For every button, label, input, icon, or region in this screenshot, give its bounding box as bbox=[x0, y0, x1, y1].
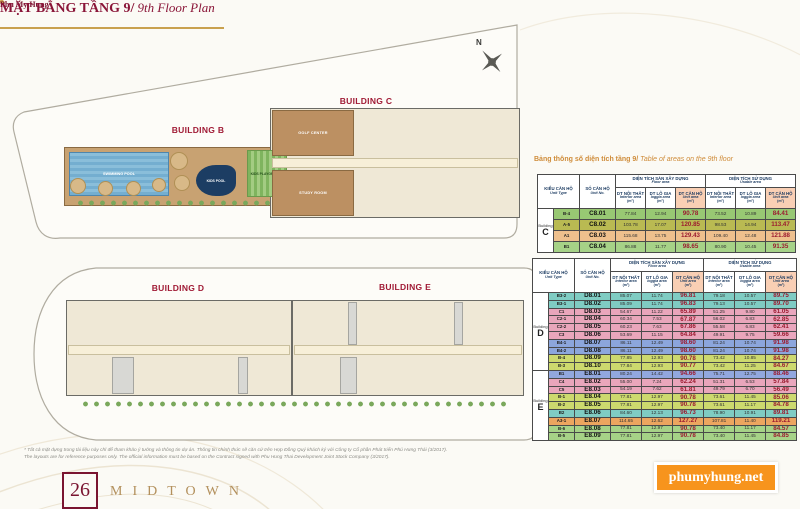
cell-unit-type: B4-1 bbox=[549, 339, 575, 347]
cell-floor-value: 11.77 bbox=[646, 242, 676, 253]
cell-floor-value: 12.97 bbox=[642, 425, 673, 433]
page-title-vi: MẶT BẰNG TẦNG 9/ bbox=[0, 1, 134, 16]
cell-floor-unit-area: 120.85 bbox=[676, 220, 706, 231]
cell-unit-no: D8.03 bbox=[575, 308, 611, 316]
cell-floor-value: 12.13 bbox=[642, 409, 673, 417]
cell-floor-value: 13.75 bbox=[646, 231, 676, 242]
building-c-corridor bbox=[272, 158, 518, 168]
building-e-core bbox=[348, 302, 357, 345]
cell-unit-no: D8.05 bbox=[575, 324, 611, 332]
cell-usable-value: 107.81 bbox=[704, 417, 735, 425]
table-row-C8.04: B1C8.0486.8811.7798.6580.9010.4591.35 bbox=[538, 242, 796, 253]
cell-usable-value: 14.94 bbox=[736, 220, 766, 231]
cell-usable-unit-area: 89.70 bbox=[766, 300, 797, 308]
header-usable-area: DIỆN TÍCH SỬ DỤNGUsable area bbox=[704, 259, 797, 272]
cell-unit-type: B1 bbox=[554, 242, 580, 253]
cell-usable-unit-area: 62.41 bbox=[766, 324, 797, 332]
building-e-title: BUILDING E bbox=[357, 282, 453, 292]
cell-floor-value: 60.23 bbox=[611, 324, 642, 332]
cell-usable-value: 75.71 bbox=[704, 370, 735, 378]
building-e-corridor bbox=[294, 345, 522, 355]
cell-unit-type: C2-1 bbox=[549, 316, 575, 324]
cell-floor-value: 77.84 bbox=[611, 363, 642, 371]
cell-usable-value: 51.25 bbox=[704, 308, 735, 316]
building-e-core bbox=[340, 357, 357, 394]
cell-usable-unit-area: 113.47 bbox=[766, 220, 796, 231]
cell-unit-type: B3-2 bbox=[549, 293, 575, 301]
cell-usable-unit-area: 56.49 bbox=[766, 386, 797, 394]
building-d-corridor bbox=[68, 345, 290, 355]
cell-unit-no: D8.02 bbox=[575, 300, 611, 308]
cell-unit-no: D8.04 bbox=[575, 316, 611, 324]
cell-floor-unit-area: 90.78 bbox=[673, 355, 704, 363]
cell-floor-value: 7.63 bbox=[642, 324, 673, 332]
disclaimer-en: The layouts are for reference purposes o… bbox=[24, 454, 744, 461]
cell-unit-no: E8.08 bbox=[575, 425, 611, 433]
cell-usable-unit-area: 91.35 bbox=[766, 242, 796, 253]
cell-floor-value: 77.81 bbox=[611, 425, 642, 433]
cell-usable-unit-area: 84.67 bbox=[766, 363, 797, 371]
page-title-en: 9th Floor Plan bbox=[137, 0, 214, 15]
cell-usable-unit-area: 89.81 bbox=[766, 409, 797, 417]
tree-icon bbox=[152, 178, 166, 192]
table-row-E8.04: B-1E8.0477.8112.9790.7873.6111.4585.06 bbox=[533, 394, 797, 402]
table-row-E8.07: A3-1E8.07114.6512.62127.27107.8111.40119… bbox=[533, 417, 797, 425]
cell-floor-unit-area: 90.77 bbox=[673, 363, 704, 371]
cell-usable-value: 11.45 bbox=[735, 433, 766, 441]
cell-floor-value: 7.62 bbox=[642, 386, 673, 394]
cell-floor-value: 12.62 bbox=[642, 417, 673, 425]
cell-unit-type: B2 bbox=[549, 409, 575, 417]
header-floor-area: DIỆN TÍCH SÀN XÂY DỰNGFloor area bbox=[611, 259, 704, 272]
cell-floor-unit-area: 62.24 bbox=[673, 378, 704, 386]
cell-unit-no: E8.06 bbox=[575, 409, 611, 417]
cell-usable-value: 79.13 bbox=[704, 300, 735, 308]
cell-usable-value: 81.24 bbox=[704, 339, 735, 347]
table-row-E8.02: C4E8.0255.007.2462.2451.316.5357.84 bbox=[533, 378, 797, 386]
cell-usable-unit-area: 91.98 bbox=[766, 347, 797, 355]
cell-usable-value: 6.53 bbox=[735, 378, 766, 386]
cell-floor-unit-area: 90.78 bbox=[673, 433, 704, 441]
cell-floor-unit-area: 90.78 bbox=[673, 402, 704, 410]
title-underline bbox=[0, 27, 224, 29]
cell-usable-unit-area: 84.41 bbox=[766, 209, 796, 220]
cell-floor-unit-area: 90.78 bbox=[676, 209, 706, 220]
cell-usable-unit-area: 121.88 bbox=[766, 231, 796, 242]
building-d-core bbox=[112, 357, 134, 394]
area-table-buildings-d-e: KIỂU CĂN HỘUnit Type SỐ CĂN HỘUnit No. D… bbox=[532, 258, 796, 441]
cell-unit-no: D8.06 bbox=[575, 331, 611, 339]
cell-floor-unit-area: 98.65 bbox=[676, 242, 706, 253]
cell-floor-value: 114.65 bbox=[611, 417, 642, 425]
cell-floor-value: 85.07 bbox=[611, 293, 642, 301]
cell-usable-value: 49.91 bbox=[704, 331, 735, 339]
cell-usable-value: 10.57 bbox=[735, 293, 766, 301]
cell-unit-no: D8.08 bbox=[575, 347, 611, 355]
page-number: 26 bbox=[62, 472, 98, 509]
page-title: MẶT BẰNG TẦNG 9/9th Floor Plan bbox=[0, 0, 215, 17]
cell-usable-value: 78.90 bbox=[704, 409, 735, 417]
cell-usable-value: 73.52 bbox=[706, 209, 736, 220]
cell-unit-no: C8.01 bbox=[580, 209, 616, 220]
cell-floor-value: 77.85 bbox=[611, 355, 642, 363]
cell-floor-value: 12.93 bbox=[642, 363, 673, 371]
table-row-E8.06: B2E8.0684.6012.1396.7378.9010.9189.81 bbox=[533, 409, 797, 417]
common-area-study-room: STUDY ROOM bbox=[272, 170, 354, 216]
cell-floor-value: 55.00 bbox=[611, 378, 642, 386]
golf-center-label: GOLF CENTER bbox=[298, 131, 327, 135]
study-room-label: STUDY ROOM bbox=[299, 191, 327, 195]
cell-usable-value: 12.48 bbox=[736, 231, 766, 242]
cell-floor-value: 7.24 bbox=[642, 378, 673, 386]
cell-floor-unit-area: 96.81 bbox=[673, 293, 704, 301]
cell-floor-unit-area: 96.73 bbox=[673, 409, 704, 417]
tree-icon bbox=[98, 181, 113, 196]
header-loggia: DT LÔ GIAloggia area(m²) bbox=[735, 272, 766, 293]
cell-floor-unit-area: 90.78 bbox=[673, 425, 704, 433]
cell-unit-type: C2-2 bbox=[549, 324, 575, 332]
cell-usable-value: 6.70 bbox=[735, 386, 766, 394]
cell-usable-value: 11.45 bbox=[735, 394, 766, 402]
cell-floor-unit-area: 94.66 bbox=[673, 370, 704, 378]
table-row-D8.05: C2-2D8.0560.237.6367.8655.586.8362.41 bbox=[533, 324, 797, 332]
cell-floor-unit-area: 67.87 bbox=[673, 316, 704, 324]
cell-floor-value: 12.93 bbox=[642, 355, 673, 363]
cell-floor-value: 54.19 bbox=[611, 386, 642, 394]
cell-usable-value: 109.40 bbox=[706, 231, 736, 242]
cell-floor-value: 86.88 bbox=[616, 242, 646, 253]
cell-floor-value: 115.68 bbox=[616, 231, 646, 242]
cell-unit-no: D8.01 bbox=[575, 293, 611, 301]
cell-floor-unit-area: 98.60 bbox=[673, 347, 704, 355]
table-row-D8.08: B4-2D8.0886.1112.4998.6081.2410.7491.98 bbox=[533, 347, 797, 355]
header-interior: DT NỘI THẤTInterior area(m²) bbox=[706, 188, 736, 209]
cell-usable-value: 10.74 bbox=[735, 339, 766, 347]
table-row-E8.03: C5E8.0354.197.6261.8149.796.7056.49 bbox=[533, 386, 797, 394]
cell-unit-type: B-3 bbox=[549, 363, 575, 371]
cell-usable-unit-area: 57.84 bbox=[766, 378, 797, 386]
cell-floor-value: 54.67 bbox=[611, 308, 642, 316]
cell-usable-value: 73.40 bbox=[704, 433, 735, 441]
disclaimer-notes: * Tất cả mặt dựng trong tài liệu này chỉ… bbox=[24, 447, 744, 462]
cell-usable-value: 11.17 bbox=[735, 425, 766, 433]
table-row-C8.01: BuildingCB-4C8.0177.8412.9490.7873.5210.… bbox=[538, 209, 796, 220]
cell-floor-unit-area: 61.81 bbox=[673, 386, 704, 394]
header-unit-area: DT CĂN HỘUnit area(m²) bbox=[766, 188, 796, 209]
cell-unit-no: E8.02 bbox=[575, 378, 611, 386]
cell-usable-value: 11.40 bbox=[735, 417, 766, 425]
cell-usable-value: 80.90 bbox=[706, 242, 736, 253]
header-unit-area: DT CĂN HỘUnit area(m²) bbox=[676, 188, 706, 209]
cell-usable-value: 73.42 bbox=[704, 363, 735, 371]
table-row-D8.01: BuildingDB3-2D8.0185.0711.7496.8179.1810… bbox=[533, 293, 797, 301]
cell-usable-unit-area: 119.21 bbox=[766, 417, 797, 425]
cell-floor-value: 12.97 bbox=[642, 394, 673, 402]
tables-heading: Bảng thông số diện tích tầng 9/ Table of… bbox=[534, 156, 798, 163]
table-row-E8.01: BuildingEB1E8.0180.2414.4294.6675.7112.7… bbox=[533, 370, 797, 378]
cell-usable-value: 11.17 bbox=[735, 402, 766, 410]
cell-floor-value: 84.60 bbox=[611, 409, 642, 417]
cell-floor-unit-area: 96.83 bbox=[673, 300, 704, 308]
header-unit-type: KIỂU CĂN HỘUnit Type bbox=[538, 175, 580, 209]
header-loggia: DT LÔ GIAloggia area(m²) bbox=[646, 188, 676, 209]
cell-unit-type: A1 bbox=[554, 231, 580, 242]
cell-usable-value: 55.58 bbox=[704, 324, 735, 332]
cell-usable-value: 6.83 bbox=[735, 316, 766, 324]
cell-unit-type: A3-1 bbox=[549, 417, 575, 425]
cell-floor-unit-area: 127.27 bbox=[673, 417, 704, 425]
cell-usable-value: 10.57 bbox=[735, 300, 766, 308]
cell-unit-type: B-4 bbox=[549, 355, 575, 363]
building-cell-D: BuildingD bbox=[533, 293, 549, 371]
table-row-D8.03: C1D8.0354.6711.2265.8951.259.8061.05 bbox=[533, 308, 797, 316]
cell-unit-type: B-4 bbox=[554, 209, 580, 220]
building-d-title: BUILDING D bbox=[130, 283, 226, 293]
cell-usable-unit-area: 91.98 bbox=[766, 339, 797, 347]
cell-unit-type: C4 bbox=[549, 378, 575, 386]
header-usable-area: DIỆN TÍCH SỬ DỤNGUsable area bbox=[706, 175, 796, 188]
cell-floor-value: 11.74 bbox=[642, 300, 673, 308]
cell-usable-unit-area: 84.85 bbox=[766, 433, 797, 441]
phumyhung-link-label: phumyhung.net bbox=[669, 470, 764, 486]
cell-usable-unit-area: 84.78 bbox=[766, 402, 797, 410]
header-unit-no: SỐ CĂN HỘUnit No. bbox=[580, 175, 616, 209]
cell-floor-value: 60.34 bbox=[611, 316, 642, 324]
cell-unit-type: B-6 bbox=[549, 425, 575, 433]
tree-icon bbox=[174, 175, 190, 191]
header-loggia: DT LÔ GIAloggia area(m²) bbox=[642, 272, 673, 293]
phumyhung-link[interactable]: phumyhung.net bbox=[654, 462, 778, 493]
cell-floor-value: 12.97 bbox=[642, 402, 673, 410]
hedge-strip bbox=[75, 199, 287, 208]
cell-floor-value: 11.22 bbox=[642, 308, 673, 316]
header-interior: DT NỘI THẤTInterior area(m²) bbox=[704, 272, 735, 293]
cell-unit-type: B-5 bbox=[549, 433, 575, 441]
cell-floor-value: 77.81 bbox=[611, 394, 642, 402]
cell-floor-value: 14.42 bbox=[642, 370, 673, 378]
cell-floor-unit-area: 98.60 bbox=[673, 339, 704, 347]
cell-unit-no: E8.03 bbox=[575, 386, 611, 394]
cell-usable-value: 10.74 bbox=[735, 347, 766, 355]
brochure-page: Phu My Hung MẶT BẰNG TẦNG 9/9th Floor Pl… bbox=[0, 0, 800, 509]
cell-floor-value: 11.74 bbox=[642, 293, 673, 301]
building-b-title: BUILDING B bbox=[150, 125, 246, 135]
cell-unit-no: C8.03 bbox=[580, 231, 616, 242]
cell-floor-unit-area: 90.78 bbox=[673, 394, 704, 402]
cell-floor-value: 85.09 bbox=[611, 300, 642, 308]
cell-floor-unit-area: 67.86 bbox=[673, 324, 704, 332]
compass-n-label: N bbox=[476, 38, 482, 47]
cell-usable-value: 12.75 bbox=[735, 370, 766, 378]
cell-floor-value: 17.07 bbox=[646, 220, 676, 231]
cell-floor-value: 86.11 bbox=[611, 347, 642, 355]
cell-usable-value: 10.89 bbox=[736, 209, 766, 220]
header-unit-no: SỐ CĂN HỘUnit No. bbox=[575, 259, 611, 293]
hedge-strip bbox=[80, 400, 510, 409]
kids-pool-label: KIDS POOL bbox=[207, 179, 226, 183]
cell-usable-value: 51.31 bbox=[704, 378, 735, 386]
cell-unit-type: B3-1 bbox=[549, 300, 575, 308]
cell-unit-type: C3 bbox=[549, 331, 575, 339]
tables-heading-vi: Bảng thông số diện tích tầng 9/ bbox=[534, 156, 638, 163]
building-c-title: BUILDING C bbox=[318, 96, 414, 106]
disclaimer-vi: * Tất cả mặt dựng trong tài liệu này chỉ… bbox=[24, 447, 744, 454]
cell-floor-value: 12.49 bbox=[642, 339, 673, 347]
tree-icon bbox=[126, 181, 141, 196]
cell-unit-type: B-2 bbox=[549, 402, 575, 410]
cell-floor-value: 12.94 bbox=[646, 209, 676, 220]
kids-pool: KIDS POOL bbox=[196, 165, 236, 196]
cell-unit-type: B1 bbox=[549, 370, 575, 378]
cell-usable-value: 6.83 bbox=[735, 324, 766, 332]
swimming-pool-label: SWIMMING POOL bbox=[103, 172, 135, 176]
cell-usable-value: 56.02 bbox=[704, 316, 735, 324]
tree-icon bbox=[170, 152, 188, 170]
cell-unit-no: D8.09 bbox=[575, 355, 611, 363]
cell-usable-value: 10.45 bbox=[736, 242, 766, 253]
cell-usable-value: 10.91 bbox=[735, 409, 766, 417]
cell-usable-value: 9.80 bbox=[735, 308, 766, 316]
cell-unit-no: E8.04 bbox=[575, 394, 611, 402]
table-row-D8.10: B-3D8.1077.8412.9390.7773.4211.2584.67 bbox=[533, 363, 797, 371]
cell-floor-value: 7.53 bbox=[642, 316, 673, 324]
cell-unit-no: E8.07 bbox=[575, 417, 611, 425]
cell-unit-no: E8.05 bbox=[575, 402, 611, 410]
header-interior: DT NỘI THẤTInterior area(m²) bbox=[616, 188, 646, 209]
cell-unit-no: D8.10 bbox=[575, 363, 611, 371]
cell-floor-value: 86.11 bbox=[611, 339, 642, 347]
header-unit-area: DT CĂN HỘUnit area(m²) bbox=[766, 272, 797, 293]
cell-unit-type: C5 bbox=[549, 386, 575, 394]
table-row-E8.09: B-5E8.0977.8112.9790.7873.4011.4584.85 bbox=[533, 433, 797, 441]
cell-usable-unit-area: 61.05 bbox=[766, 308, 797, 316]
building-e-core bbox=[454, 302, 463, 345]
tables-heading-en: Table of areas on the 9th floor bbox=[638, 156, 733, 163]
cell-usable-value: 73.61 bbox=[704, 394, 735, 402]
cell-usable-value: 79.18 bbox=[704, 293, 735, 301]
cell-floor-value: 77.81 bbox=[611, 402, 642, 410]
cell-unit-no: C8.02 bbox=[580, 220, 616, 231]
cell-floor-unit-area: 129.43 bbox=[676, 231, 706, 242]
cell-floor-value: 77.84 bbox=[616, 209, 646, 220]
cell-unit-no: E8.01 bbox=[575, 370, 611, 378]
cell-usable-value: 73.42 bbox=[704, 355, 735, 363]
table-row-C8.02: A-5C8.02103.7817.07120.8598.5314.94113.4… bbox=[538, 220, 796, 231]
building-cell-C: BuildingC bbox=[538, 209, 554, 253]
cell-unit-type: C1 bbox=[549, 308, 575, 316]
building-d-core bbox=[238, 357, 248, 394]
cell-usable-unit-area: 84.57 bbox=[766, 425, 797, 433]
cell-usable-value: 9.75 bbox=[735, 331, 766, 339]
cell-floor-value: 103.78 bbox=[616, 220, 646, 231]
cell-usable-value: 81.24 bbox=[704, 347, 735, 355]
building-cell-E: BuildingE bbox=[533, 370, 549, 440]
cell-usable-unit-area: 84.27 bbox=[766, 355, 797, 363]
header-floor-area: DIỆN TÍCH SÀN XÂY DỰNGFloor area bbox=[616, 175, 706, 188]
table-row-D8.04: C2-1D8.0460.347.5367.8756.026.8362.85 bbox=[533, 316, 797, 324]
cell-usable-value: 73.40 bbox=[704, 425, 735, 433]
cell-usable-unit-area: 85.06 bbox=[766, 394, 797, 402]
cell-usable-value: 10.85 bbox=[735, 355, 766, 363]
cell-usable-value: 73.61 bbox=[704, 402, 735, 410]
cell-floor-value: 80.24 bbox=[611, 370, 642, 378]
header-unit-type: KIỂU CĂN HỘUnit Type bbox=[533, 259, 575, 293]
header-loggia: DT LÔ GIAloggia area(m²) bbox=[736, 188, 766, 209]
table-row-E8.08: B-6E8.0877.8112.9790.7873.4011.1784.57 bbox=[533, 425, 797, 433]
area-table-building-c: KIỂU CĂN HỘUnit Type SỐ CĂN HỘUnit No. D… bbox=[537, 174, 795, 253]
cell-floor-value: 77.81 bbox=[611, 433, 642, 441]
cell-floor-value: 53.69 bbox=[611, 331, 642, 339]
cell-floor-value: 12.49 bbox=[642, 347, 673, 355]
tree-icon bbox=[70, 178, 86, 194]
cell-unit-type: A-5 bbox=[554, 220, 580, 231]
cell-unit-type: B-1 bbox=[549, 394, 575, 402]
cell-usable-value: 98.53 bbox=[706, 220, 736, 231]
cell-unit-type: B4-2 bbox=[549, 347, 575, 355]
common-area-golf-center: GOLF CENTER bbox=[272, 110, 354, 156]
brand-midtown: MIDTOWN bbox=[110, 484, 249, 500]
cell-unit-no: E8.09 bbox=[575, 433, 611, 441]
table-row-C8.03: A1C8.03115.6813.75129.43109.4012.48121.8… bbox=[538, 231, 796, 242]
cell-usable-unit-area: 89.75 bbox=[766, 293, 797, 301]
cell-floor-value: 11.15 bbox=[642, 331, 673, 339]
cell-floor-unit-area: 65.89 bbox=[673, 308, 704, 316]
cell-usable-unit-area: 88.46 bbox=[766, 370, 797, 378]
compass-north-icon: N bbox=[474, 36, 508, 78]
cell-usable-value: 11.25 bbox=[735, 363, 766, 371]
cell-unit-no: D8.07 bbox=[575, 339, 611, 347]
header-unit-area: DT CĂN HỘUnit area(m²) bbox=[673, 272, 704, 293]
cell-usable-value: 49.79 bbox=[704, 386, 735, 394]
table-row-D8.06: C3D8.0653.6911.1564.8449.919.7559.66 bbox=[533, 331, 797, 339]
cell-unit-no: C8.04 bbox=[580, 242, 616, 253]
cell-usable-unit-area: 62.85 bbox=[766, 316, 797, 324]
table-row-D8.02: B3-1D8.0285.0911.7496.8379.1310.5789.70 bbox=[533, 300, 797, 308]
table-row-E8.05: B-2E8.0577.8112.9790.7873.6111.1784.78 bbox=[533, 402, 797, 410]
cell-usable-unit-area: 59.66 bbox=[766, 331, 797, 339]
table-row-D8.09: B-4D8.0977.8512.9390.7873.4210.8584.27 bbox=[533, 355, 797, 363]
cell-floor-unit-area: 64.84 bbox=[673, 331, 704, 339]
header-interior: DT NỘI THẤTInterior area(m²) bbox=[611, 272, 642, 293]
table-row-D8.07: B4-1D8.0786.1112.4998.6081.2410.7491.98 bbox=[533, 339, 797, 347]
cell-floor-value: 12.97 bbox=[642, 433, 673, 441]
